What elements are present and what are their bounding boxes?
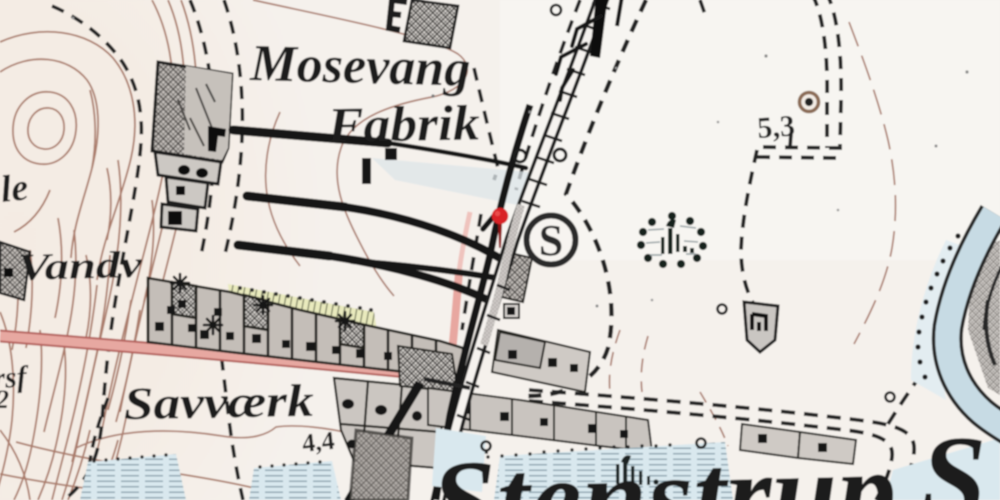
svg-text:4,4: 4,4 bbox=[301, 426, 336, 458]
svg-text:le: le bbox=[0, 166, 30, 211]
svg-text:S: S bbox=[539, 216, 563, 265]
svg-text:Savværk: Savværk bbox=[123, 375, 314, 429]
svg-text:5,3: 5,3 bbox=[756, 109, 796, 145]
svg-text:Fabrik: Fabrik bbox=[326, 94, 480, 153]
svg-text:Stenstrup: Stenstrup bbox=[429, 425, 898, 500]
svg-text:2: 2 bbox=[0, 385, 9, 414]
svg-text:Mosevang: Mosevang bbox=[249, 35, 471, 98]
svg-text:Vandv: Vandv bbox=[17, 244, 143, 289]
svg-text:S: S bbox=[920, 411, 987, 500]
